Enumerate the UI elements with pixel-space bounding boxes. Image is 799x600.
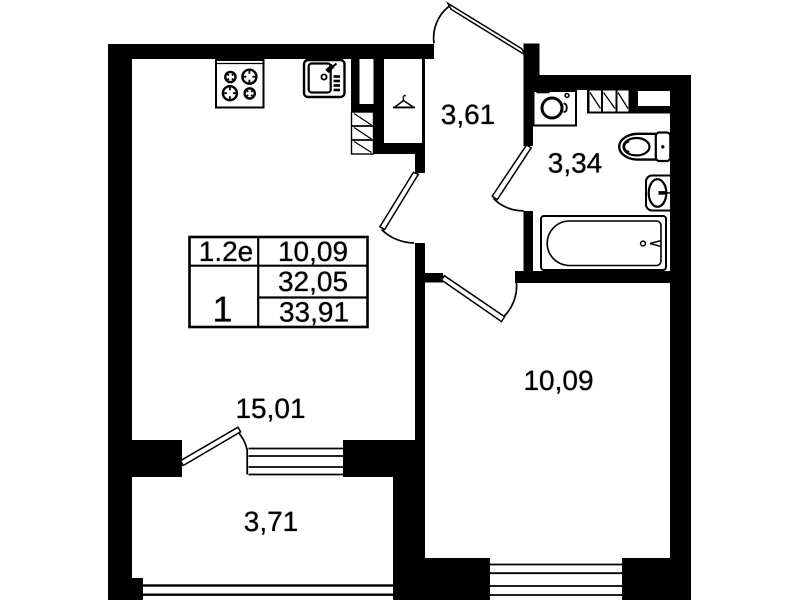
- svg-text:10,09: 10,09: [523, 365, 593, 396]
- svg-text:15,01: 15,01: [235, 393, 305, 424]
- svg-text:1.2e: 1.2e: [199, 236, 254, 267]
- svg-text:10,09: 10,09: [278, 236, 348, 267]
- svg-text:32,05: 32,05: [278, 266, 348, 297]
- svg-text:1: 1: [212, 289, 232, 330]
- svg-text:33,91: 33,91: [279, 297, 349, 328]
- svg-text:3,61: 3,61: [441, 99, 496, 130]
- svg-text:3,34: 3,34: [548, 148, 603, 179]
- svg-text:3,71: 3,71: [244, 506, 299, 537]
